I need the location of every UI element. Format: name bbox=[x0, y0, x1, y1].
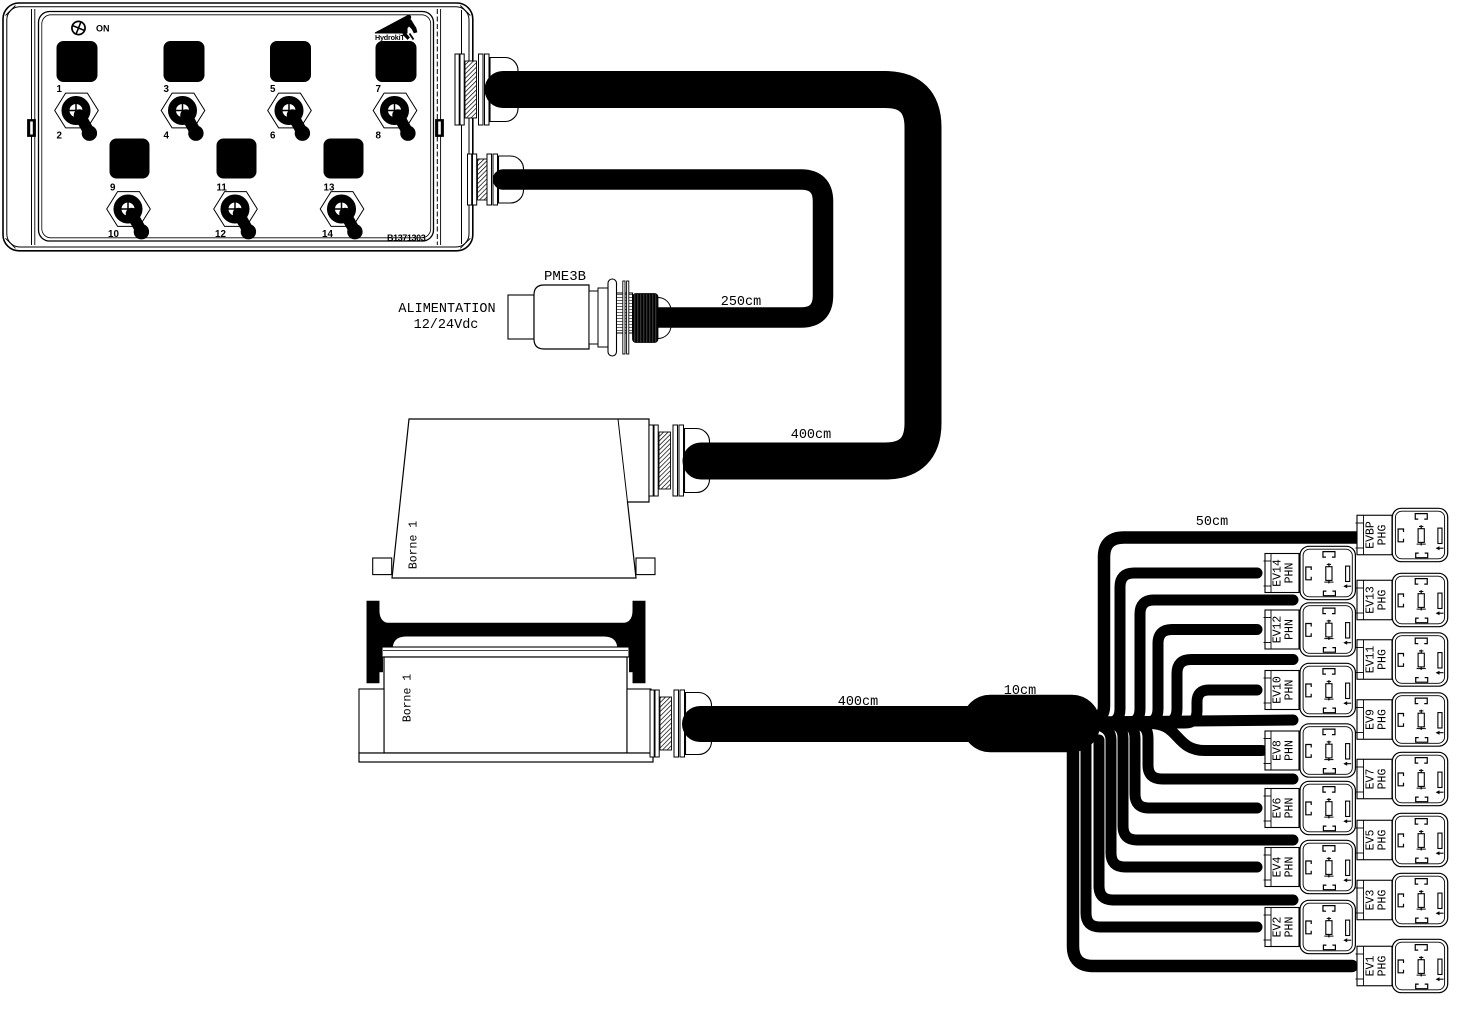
svg-text:PHN: PHN bbox=[1284, 619, 1297, 640]
svg-text:PHG: PHG bbox=[1377, 709, 1390, 730]
svg-text:250cm: 250cm bbox=[721, 295, 762, 310]
svg-text:PHN: PHN bbox=[1284, 798, 1297, 819]
svg-text:PHG: PHG bbox=[1377, 890, 1390, 911]
svg-text:ALIMENTATION: ALIMENTATION bbox=[398, 302, 495, 317]
svg-text:PME3B: PME3B bbox=[544, 269, 586, 285]
svg-text:HydrokiT: HydrokiT bbox=[375, 33, 405, 42]
svg-text:Borne 1: Borne 1 bbox=[408, 521, 421, 569]
svg-text:PHG: PHG bbox=[1377, 769, 1390, 790]
svg-text:7: 7 bbox=[376, 84, 382, 95]
svg-text:3: 3 bbox=[164, 84, 170, 95]
svg-text:PHN: PHN bbox=[1284, 857, 1297, 878]
svg-text:10: 10 bbox=[108, 229, 119, 240]
svg-text:6: 6 bbox=[270, 131, 276, 142]
svg-text:B1371303: B1371303 bbox=[387, 233, 426, 243]
svg-text:PHG: PHG bbox=[1377, 525, 1390, 546]
svg-text:50cm: 50cm bbox=[1196, 515, 1228, 530]
svg-text:12: 12 bbox=[215, 229, 226, 240]
svg-text:PHN: PHN bbox=[1284, 680, 1297, 701]
svg-text:8: 8 bbox=[376, 131, 382, 142]
svg-text:5: 5 bbox=[270, 84, 276, 95]
svg-text:4: 4 bbox=[164, 131, 170, 142]
svg-text:14: 14 bbox=[322, 229, 333, 240]
svg-text:400cm: 400cm bbox=[791, 428, 832, 443]
svg-text:1: 1 bbox=[57, 84, 63, 95]
svg-text:Borne 1: Borne 1 bbox=[402, 674, 415, 722]
svg-text:PHG: PHG bbox=[1377, 956, 1390, 977]
svg-text:400cm: 400cm bbox=[838, 695, 879, 710]
svg-text:PHN: PHN bbox=[1284, 740, 1297, 761]
svg-text:ON: ON bbox=[96, 24, 110, 34]
svg-text:PHG: PHG bbox=[1377, 830, 1390, 851]
svg-text:12/24Vdc: 12/24Vdc bbox=[414, 318, 479, 333]
svg-text:10cm: 10cm bbox=[1004, 684, 1036, 699]
svg-text:9: 9 bbox=[110, 183, 116, 194]
svg-text:2: 2 bbox=[57, 131, 63, 142]
svg-text:PHN: PHN bbox=[1284, 917, 1297, 938]
svg-text:PHG: PHG bbox=[1377, 649, 1390, 670]
svg-text:PHN: PHN bbox=[1284, 563, 1297, 584]
svg-text:PHG: PHG bbox=[1377, 590, 1390, 611]
